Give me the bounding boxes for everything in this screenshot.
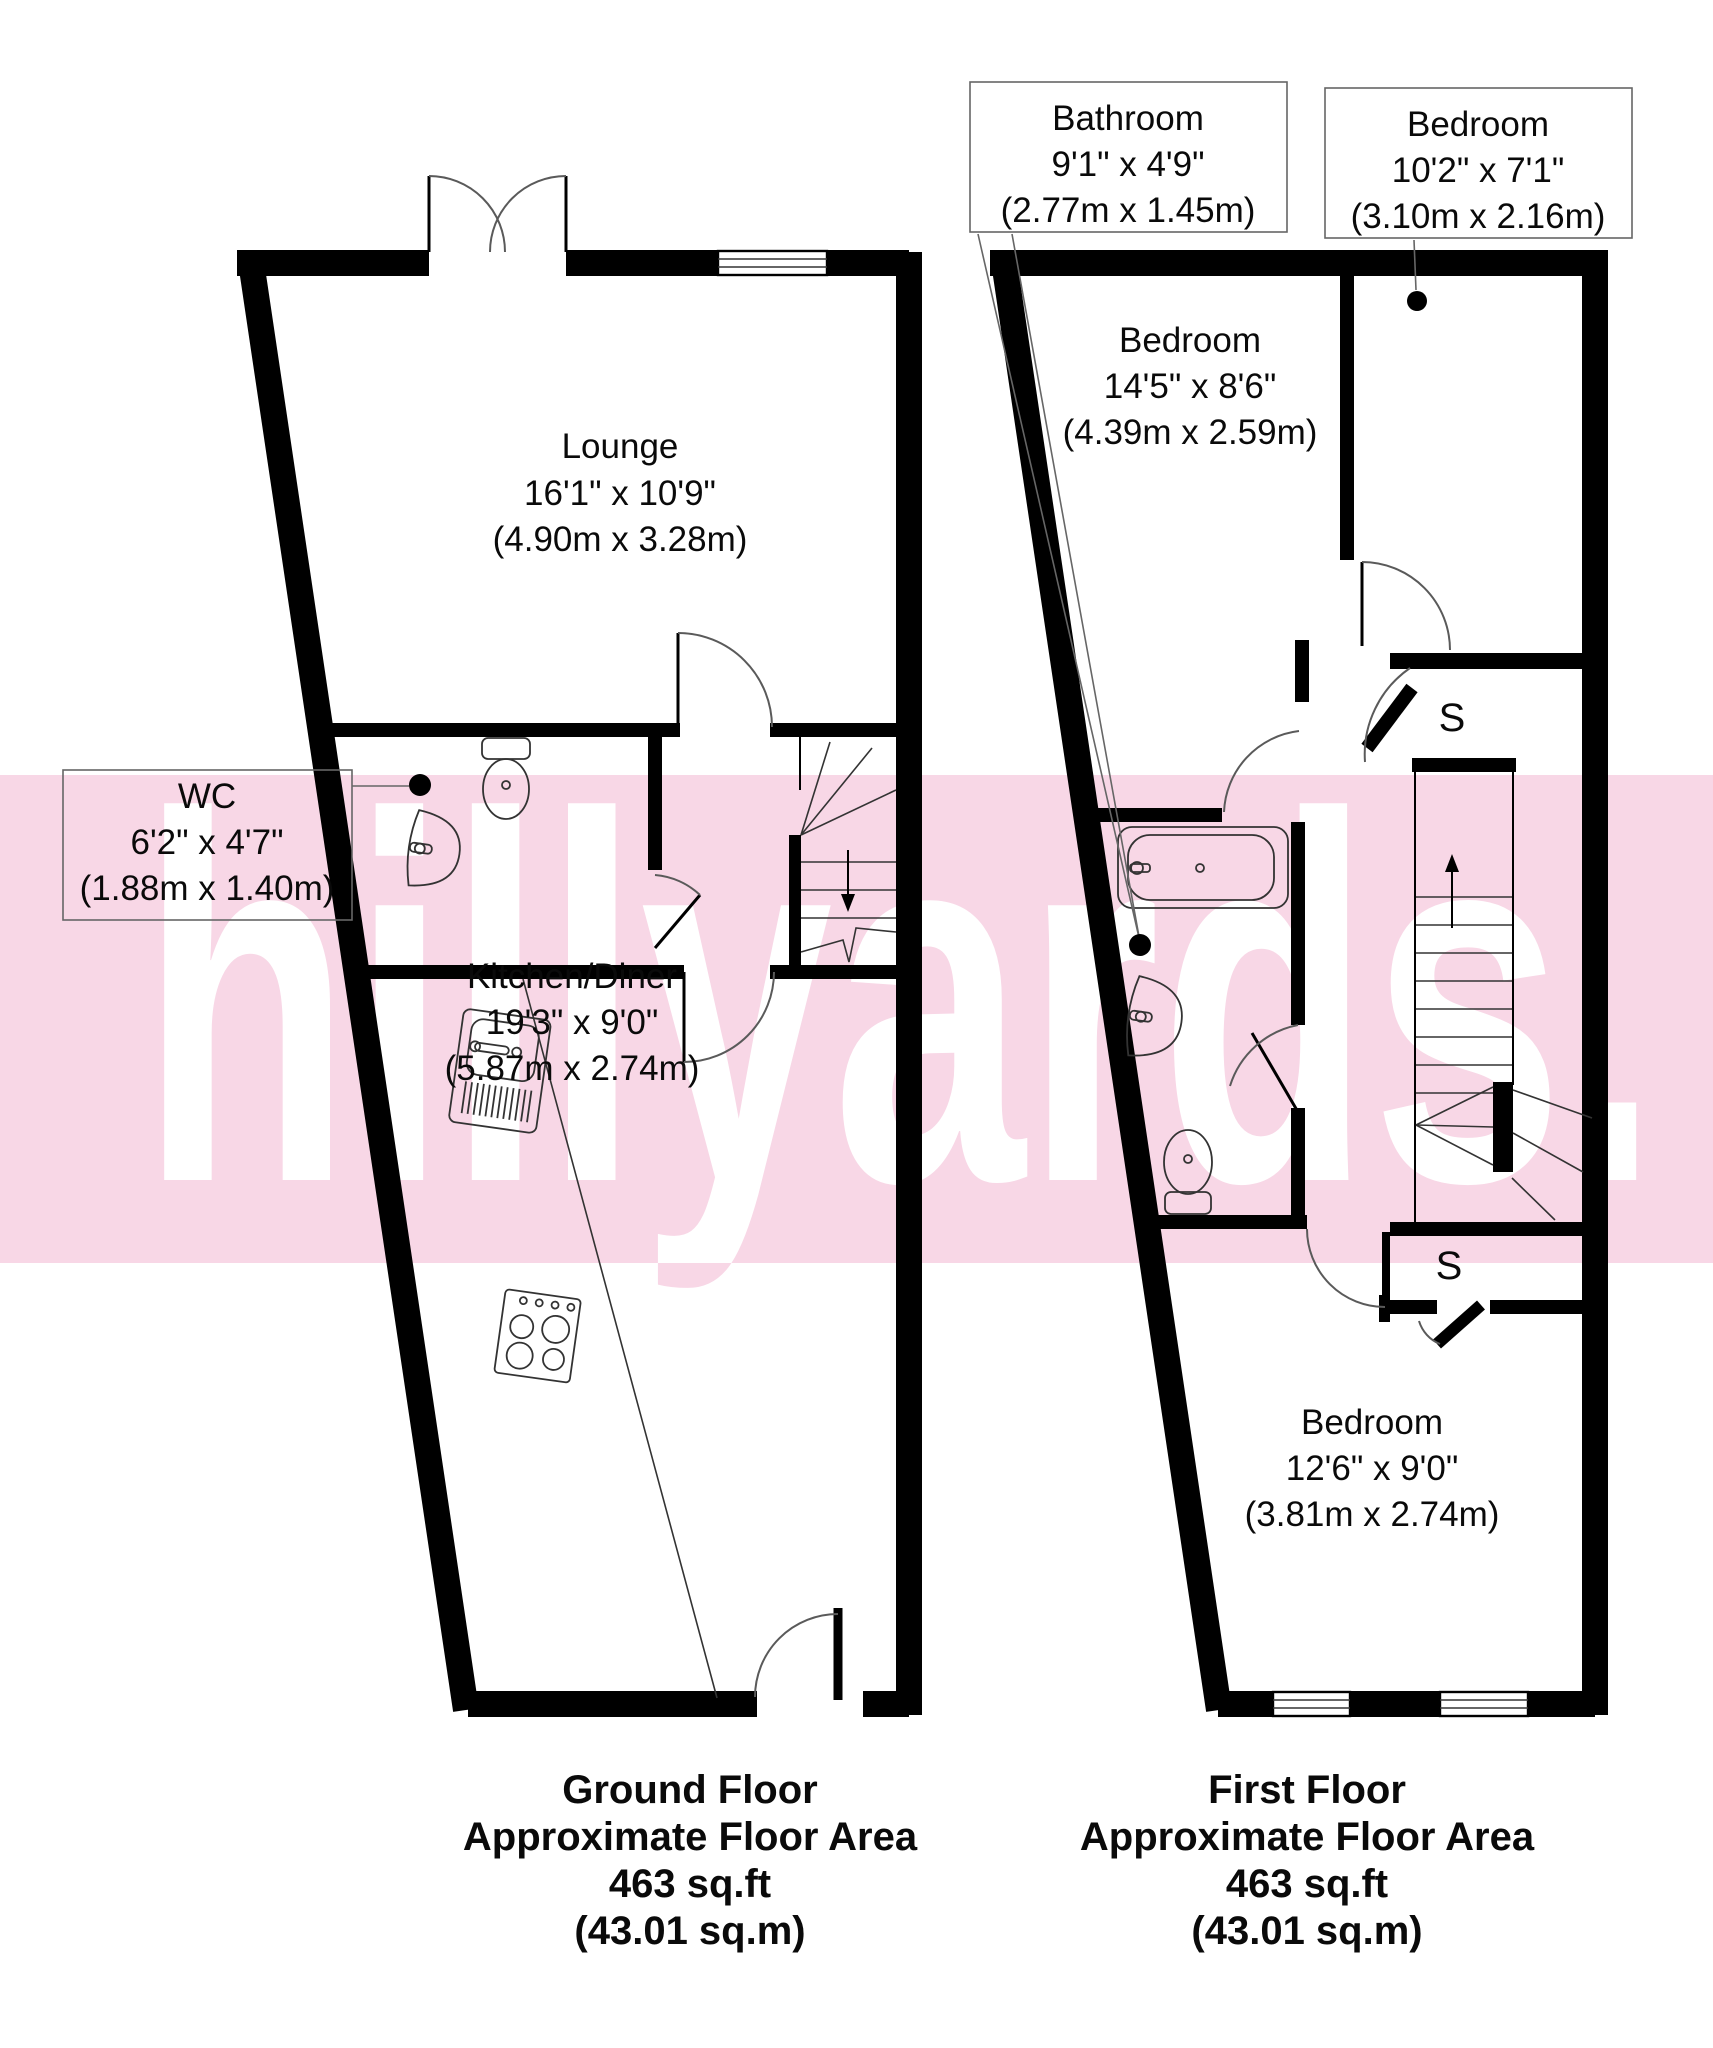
room-dims-ft: 14'5" x 8'6" bbox=[1104, 367, 1277, 406]
footer-line: (43.01 sq.m) bbox=[574, 1909, 805, 1953]
room-name: Lounge bbox=[562, 427, 679, 466]
room-dims-m: (3.81m x 2.74m) bbox=[1245, 1495, 1500, 1534]
footer-line: Approximate Floor Area bbox=[463, 1815, 918, 1859]
lounge-label: Lounge 16'1" x 10'9" (4.90m x 3.28m) bbox=[493, 427, 748, 559]
watermark: hillyards. hillyards. bbox=[0, 710, 1713, 1294]
footer-line: Approximate Floor Area bbox=[1080, 1815, 1535, 1859]
room-dims-m: (5.87m x 2.74m) bbox=[445, 1049, 700, 1088]
room-dims-ft: 19'3" x 9'0" bbox=[486, 1003, 659, 1042]
door-arc bbox=[490, 176, 566, 252]
room-dims-ft: 16'1" x 10'9" bbox=[524, 474, 716, 513]
footer-line: 463 sq.ft bbox=[609, 1862, 771, 1906]
room-name: Bathroom bbox=[1052, 99, 1204, 138]
room-dims-m: (4.39m x 2.59m) bbox=[1063, 413, 1318, 452]
footer-line: First Floor bbox=[1208, 1768, 1406, 1812]
room-name: Kitchen/Diner bbox=[467, 957, 677, 996]
leader-dot bbox=[1407, 291, 1427, 311]
french-doors bbox=[429, 176, 566, 252]
rear-door bbox=[755, 1608, 838, 1700]
footer-line: 463 sq.ft bbox=[1226, 1862, 1388, 1906]
leader-dot bbox=[1129, 934, 1151, 956]
room-dims-ft: 12'6" x 9'0" bbox=[1286, 1449, 1459, 1488]
first-floor-footer: First Floor Approximate Floor Area 463 s… bbox=[1080, 1768, 1535, 1953]
bedroom-third-label: Bedroom 12'6" x 9'0" (3.81m x 2.74m) bbox=[1245, 1403, 1500, 1534]
door-jamb bbox=[1379, 1295, 1390, 1322]
room-name: Bedroom bbox=[1301, 1403, 1443, 1442]
room-dims-ft: 9'1" x 4'9" bbox=[1051, 145, 1204, 184]
door-arc bbox=[429, 176, 505, 252]
room-dims-m: (4.90m x 3.28m) bbox=[493, 520, 748, 559]
leader-dot bbox=[409, 774, 431, 796]
room-dims-ft: 6'2" x 4'7" bbox=[130, 823, 283, 862]
kitchen-cooker bbox=[494, 1289, 581, 1383]
storage2-label: S bbox=[1436, 1244, 1463, 1288]
room-name: Bedroom bbox=[1407, 105, 1549, 144]
room-dims-m: (3.10m x 2.16m) bbox=[1351, 197, 1606, 236]
storage1-label: S bbox=[1439, 696, 1466, 740]
lounge-window bbox=[718, 251, 827, 275]
footer-line: Ground Floor bbox=[562, 1768, 818, 1812]
room-dims-m: (2.77m x 1.45m) bbox=[1001, 191, 1256, 230]
footer-line: (43.01 sq.m) bbox=[1191, 1909, 1422, 1953]
room-name: Bedroom bbox=[1119, 321, 1261, 360]
room-name: WC bbox=[178, 777, 236, 816]
ground-floor-footer: Ground Floor Approximate Floor Area 463 … bbox=[463, 1768, 918, 1953]
floorplan-canvas: hillyards. hillyards. bbox=[0, 0, 1713, 2048]
leader-line bbox=[1414, 240, 1416, 290]
bedroom-large-label: Bedroom 14'5" x 8'6" (4.39m x 2.59m) bbox=[1063, 321, 1318, 452]
room-dims-m: (1.88m x 1.40m) bbox=[80, 869, 335, 908]
bedroom-small-door bbox=[1362, 562, 1450, 650]
room-dims-ft: 10'2" x 7'1" bbox=[1392, 151, 1565, 190]
